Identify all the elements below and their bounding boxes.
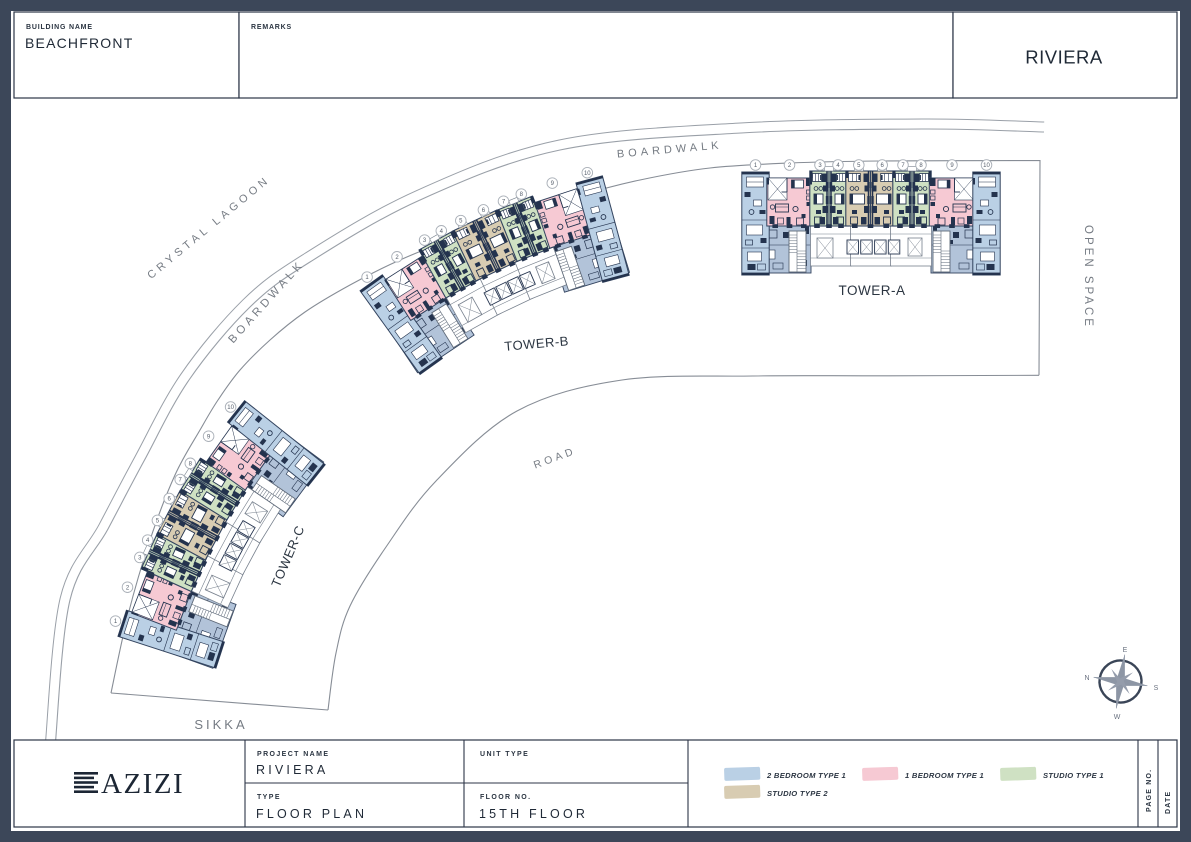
svg-text:E: E [1123, 647, 1128, 654]
svg-text:15TH FLOOR: 15TH FLOOR [479, 807, 588, 821]
svg-text:2 BEDROOM TYPE 1: 2 BEDROOM TYPE 1 [766, 771, 846, 780]
svg-text:OPEN SPACE: OPEN SPACE [1082, 225, 1094, 329]
svg-text:BUILDING NAME: BUILDING NAME [26, 24, 93, 31]
svg-text:DATE: DATE [1165, 791, 1172, 814]
svg-text:AZIZI: AZIZI [101, 768, 184, 800]
svg-text:BEACHFRONT: BEACHFRONT [25, 35, 133, 51]
svg-text:SIKKA: SIKKA [194, 717, 247, 732]
svg-text:PAGE NO.: PAGE NO. [1146, 769, 1153, 812]
svg-text:FLOOR PLAN: FLOOR PLAN [256, 807, 367, 821]
svg-text:RIVIERA: RIVIERA [256, 763, 328, 777]
svg-text:10: 10 [584, 171, 591, 177]
svg-text:TYPE: TYPE [257, 794, 281, 801]
svg-text:10: 10 [227, 405, 234, 411]
svg-text:1 BEDROOM TYPE 1: 1 BEDROOM TYPE 1 [905, 771, 984, 780]
svg-text:STUDIO TYPE 2: STUDIO TYPE 2 [767, 789, 828, 798]
svg-text:REMARKS: REMARKS [251, 24, 292, 31]
svg-text:N: N [1084, 675, 1089, 682]
svg-text:UNIT TYPE: UNIT TYPE [480, 751, 529, 758]
svg-text:TOWER-A: TOWER-A [839, 283, 906, 298]
svg-text:FLOOR NO.: FLOOR NO. [480, 794, 532, 801]
svg-text:W: W [1114, 714, 1121, 721]
svg-text:PROJECT NAME: PROJECT NAME [257, 751, 329, 758]
svg-text:10: 10 [983, 163, 990, 169]
svg-text:RIVIERA: RIVIERA [1025, 47, 1103, 68]
svg-text:STUDIO TYPE 1: STUDIO TYPE 1 [1043, 771, 1104, 780]
svg-text:S: S [1154, 685, 1159, 692]
